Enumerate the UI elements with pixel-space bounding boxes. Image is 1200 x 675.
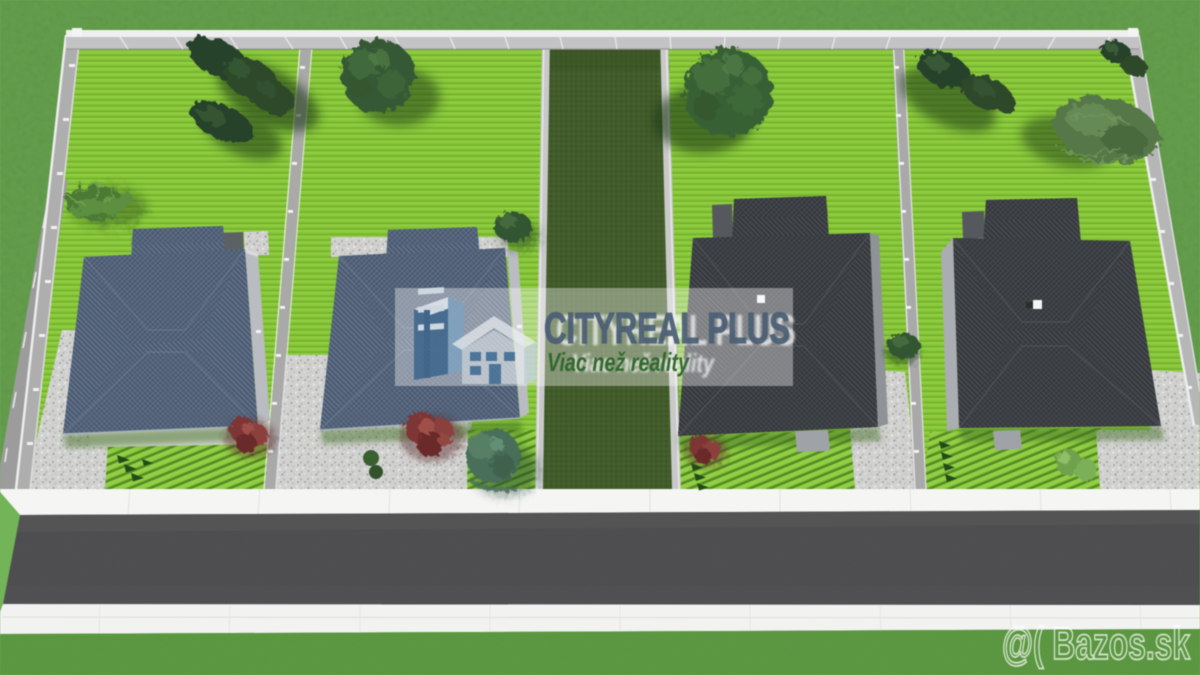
svg-text:CITYREAL PLUS: CITYREAL PLUS [544, 304, 790, 353]
svg-text:@( Bazos.sk: @( Bazos.sk [1002, 618, 1191, 669]
svg-text:Viac než reality: Viac než reality [547, 347, 690, 377]
